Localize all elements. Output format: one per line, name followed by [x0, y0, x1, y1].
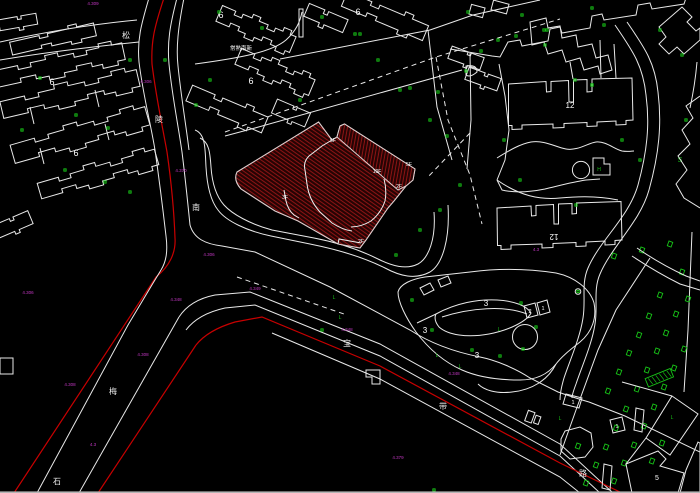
- svg-text:4.370: 4.370: [175, 168, 187, 173]
- svg-text:L: L: [339, 315, 342, 321]
- svg-text:6: 6: [49, 77, 54, 87]
- svg-text:3: 3: [475, 351, 480, 360]
- svg-text:L: L: [559, 416, 562, 422]
- svg-text:L: L: [459, 364, 462, 370]
- svg-text:L: L: [498, 327, 501, 333]
- svg-text:4.308: 4.308: [64, 382, 76, 387]
- svg-text:6: 6: [248, 76, 253, 86]
- svg-text:2F: 2F: [358, 239, 364, 245]
- svg-text:4.309: 4.309: [87, 1, 99, 6]
- svg-text:12: 12: [549, 232, 558, 241]
- svg-text:带: 带: [439, 402, 447, 411]
- svg-text:L: L: [671, 415, 674, 421]
- svg-text:L: L: [436, 353, 439, 359]
- svg-text:5F: 5F: [406, 162, 412, 168]
- svg-text:3: 3: [484, 299, 489, 308]
- svg-text:4.349: 4.349: [249, 286, 261, 291]
- svg-text:5F: 5F: [330, 138, 336, 144]
- svg-text:4.308: 4.308: [137, 352, 149, 357]
- svg-text:3: 3: [423, 326, 428, 335]
- svg-text:梅: 梅: [109, 386, 117, 396]
- svg-text:常熟南新: 常熟南新: [230, 44, 253, 52]
- svg-text:H: H: [597, 167, 601, 173]
- svg-text:松: 松: [122, 30, 130, 40]
- svg-text:南: 南: [192, 202, 200, 212]
- svg-text:4.379: 4.379: [392, 455, 404, 460]
- svg-text:2F: 2F: [396, 184, 402, 190]
- svg-text:6: 6: [355, 7, 360, 17]
- svg-text:路: 路: [579, 468, 587, 478]
- svg-text:4.306: 4.306: [203, 252, 215, 257]
- svg-text:4.348: 4.348: [341, 327, 353, 332]
- svg-text:10F: 10F: [373, 169, 382, 175]
- svg-text:12: 12: [566, 101, 575, 110]
- svg-text:3F: 3F: [282, 195, 288, 201]
- svg-text:1: 1: [541, 306, 544, 312]
- svg-text:1: 1: [571, 400, 574, 406]
- svg-text:2: 2: [528, 309, 531, 315]
- svg-text:宝: 宝: [343, 338, 351, 348]
- svg-text:4.3: 4.3: [533, 247, 540, 252]
- svg-text:5: 5: [655, 475, 659, 482]
- svg-text:1: 1: [615, 424, 618, 430]
- svg-text:石: 石: [53, 477, 61, 486]
- svg-text:陵: 陵: [155, 115, 163, 124]
- svg-text:4.3: 4.3: [90, 442, 97, 447]
- svg-text:6: 6: [218, 10, 223, 20]
- svg-text:4.306: 4.306: [140, 79, 152, 84]
- svg-text:4.306: 4.306: [22, 290, 34, 295]
- svg-text:6: 6: [73, 148, 78, 158]
- svg-text:4.348: 4.348: [448, 371, 460, 376]
- svg-text:4.348: 4.348: [170, 297, 182, 302]
- svg-text:L: L: [333, 295, 336, 301]
